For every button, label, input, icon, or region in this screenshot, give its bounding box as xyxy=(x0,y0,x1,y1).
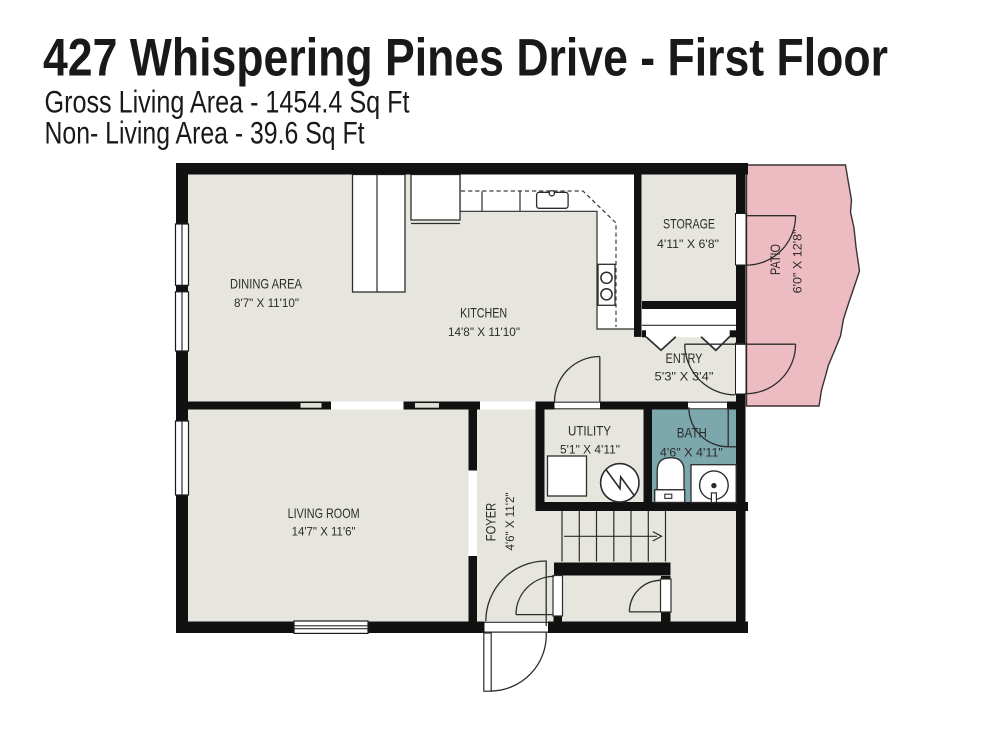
svg-text:5'3" X 3'4": 5'3" X 3'4" xyxy=(655,369,714,383)
svg-text:14'8" X 11'10": 14'8" X 11'10" xyxy=(448,325,520,339)
svg-text:427 Whispering Pines Drive - F: 427 Whispering Pines Drive - First Floor xyxy=(43,29,888,88)
svg-text:Non- Living Area - 39.6 Sq Ft: Non- Living Area - 39.6 Sq Ft xyxy=(45,115,365,151)
svg-text:KITCHEN: KITCHEN xyxy=(460,306,507,321)
svg-text:4'11" X 6'8": 4'11" X 6'8" xyxy=(657,237,719,251)
svg-text:6'0" X 12'8": 6'0" X 12'8" xyxy=(791,229,805,293)
svg-text:UTILITY: UTILITY xyxy=(568,424,611,439)
svg-text:LIVING ROOM: LIVING ROOM xyxy=(288,506,360,521)
svg-text:8'7" X 11'10": 8'7" X 11'10" xyxy=(234,296,299,310)
svg-text:ENTRY: ENTRY xyxy=(666,351,703,366)
svg-text:4'6" X 11'2": 4'6" X 11'2" xyxy=(503,493,517,551)
svg-text:BATH: BATH xyxy=(677,425,707,440)
svg-text:14'7" X 11'6": 14'7" X 11'6" xyxy=(292,524,356,538)
svg-text:DINING AREA: DINING AREA xyxy=(230,277,303,292)
svg-text:5'1" X 4'11": 5'1" X 4'11" xyxy=(560,443,620,457)
svg-text:STORAGE: STORAGE xyxy=(663,217,715,232)
svg-text:FOYER: FOYER xyxy=(484,503,499,542)
